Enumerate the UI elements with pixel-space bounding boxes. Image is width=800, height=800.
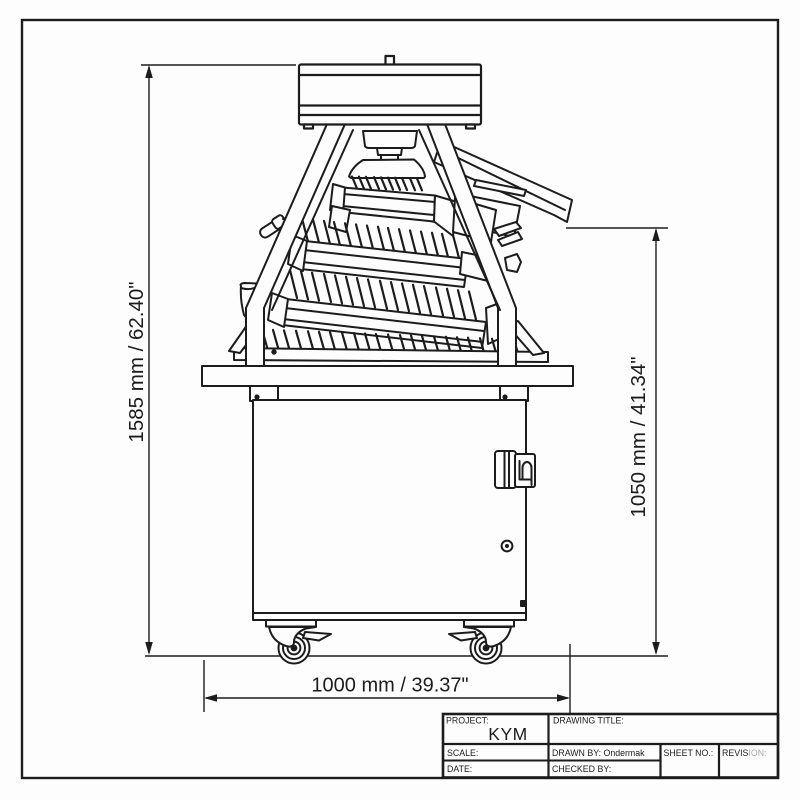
svg-text:DATE:: DATE: <box>447 764 472 774</box>
svg-text:REVISION:: REVISION: <box>722 748 767 758</box>
svg-text:PROJECT:: PROJECT: <box>446 716 489 726</box>
svg-text:DRAWING TITLE:: DRAWING TITLE: <box>553 716 624 726</box>
svg-text:1000 mm / 39.37": 1000 mm / 39.37" <box>311 675 468 697</box>
svg-text:1050 mm / 41.34": 1050 mm / 41.34" <box>627 356 650 517</box>
svg-text:1585 mm / 62.40": 1585 mm / 62.40" <box>125 281 148 442</box>
svg-text:DRAWN BY: Ondermak: DRAWN BY: Ondermak <box>552 748 645 758</box>
svg-text:KYM: KYM <box>488 724 527 744</box>
svg-text:CHECKED BY:: CHECKED BY: <box>552 764 611 774</box>
svg-text:SHEET NO.:: SHEET NO.: <box>664 748 714 758</box>
svg-text:SCALE:: SCALE: <box>447 748 478 758</box>
